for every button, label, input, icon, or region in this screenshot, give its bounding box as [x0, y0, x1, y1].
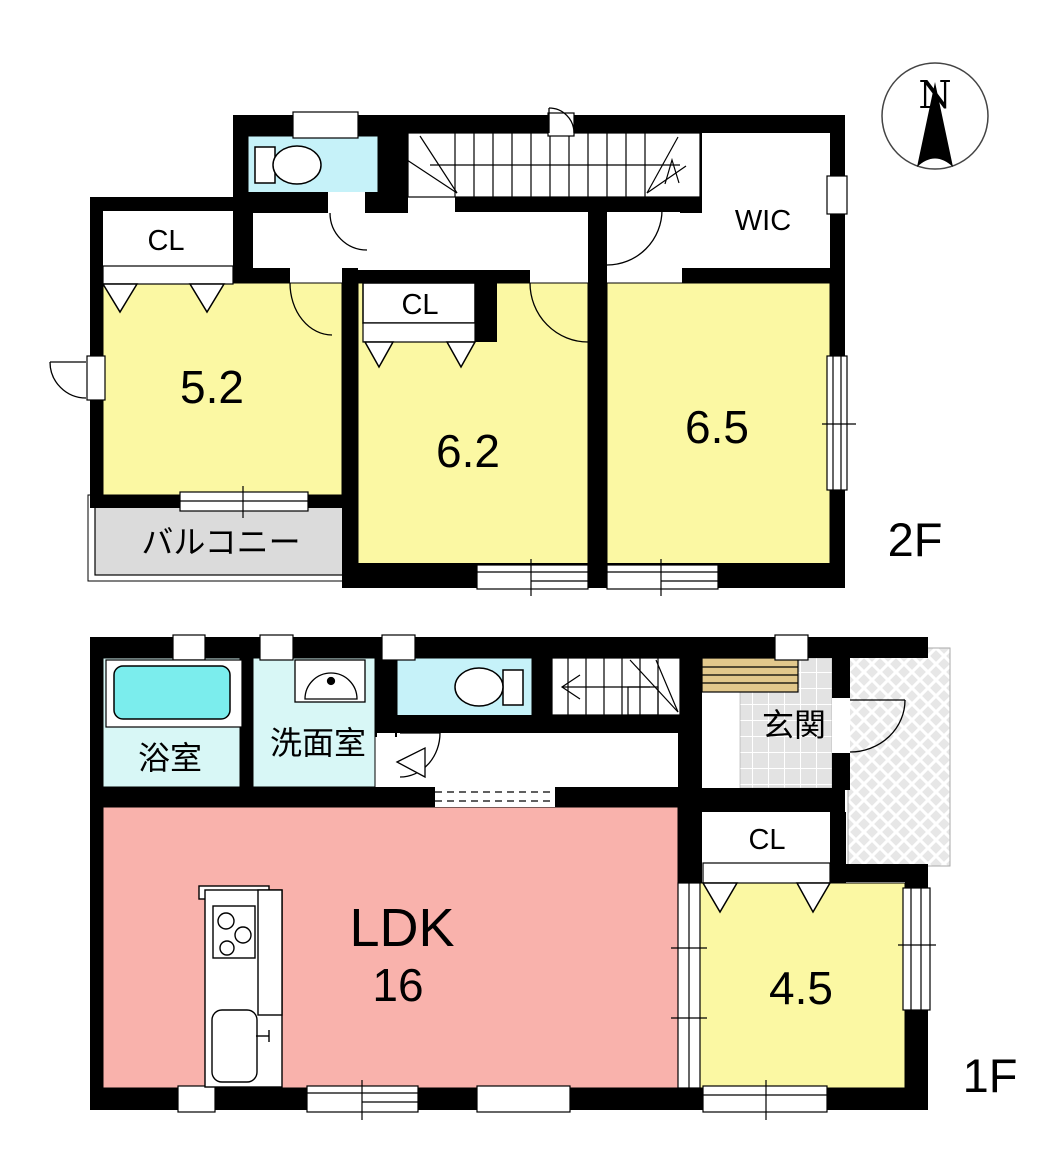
window [382, 635, 415, 660]
stove-icon [213, 906, 255, 958]
closet-1f-label: CL [748, 824, 785, 856]
bath-door-icon [397, 748, 425, 777]
floor-2f-label: 2F [888, 513, 943, 566]
sink-icon [295, 660, 365, 702]
floor-1f-plan: 浴室 洗面室 玄関 CL LDK 16 4.5 1F [90, 635, 1017, 1120]
room-52-label: 5.2 [180, 361, 244, 413]
toilet-icon-2f [255, 146, 321, 184]
door-arc-room-65 [607, 210, 662, 265]
ldk-label: LDK [349, 898, 454, 958]
hall-ldk-opening [435, 787, 555, 807]
window [173, 635, 205, 660]
window-45-bottom [703, 1080, 827, 1120]
bathtub-icon [106, 660, 242, 727]
room-45-label: 4.5 [769, 962, 833, 1014]
toilet-icon-1f [455, 668, 523, 706]
closet-62-label: CL [401, 289, 438, 321]
closet-front-left [103, 266, 233, 284]
window [87, 356, 105, 400]
window-62-bottom [477, 559, 588, 596]
stairs-2f [404, 133, 700, 197]
window-65-right [822, 356, 856, 490]
door-exterior-52 [50, 362, 86, 398]
washroom-label: 洗面室 [270, 725, 366, 761]
window [548, 113, 574, 136]
bath-label: 浴室 [138, 740, 202, 776]
floor-1f-label: 1F [963, 1049, 1018, 1102]
window [293, 112, 358, 138]
ldk-sliding-door [307, 1080, 418, 1120]
room-65-label: 6.5 [685, 401, 749, 453]
wic-label: WIC [735, 205, 791, 237]
floorplan-svg: N [0, 0, 1061, 1164]
kitchen-unit [199, 886, 282, 1087]
door-arc-toilet-2f [330, 213, 367, 250]
window [775, 635, 808, 660]
closet-front-62 [363, 323, 475, 342]
ldk-size-label: 16 [372, 959, 423, 1011]
window-45-right [898, 888, 936, 1010]
window [260, 635, 293, 660]
room-62-label: 6.2 [436, 425, 500, 477]
floor-2f-plan: CL CL WIC 5.2 6.2 6.5 バルコニー 2F [50, 108, 942, 596]
floorplan-canvas: N [0, 0, 1061, 1164]
window [178, 1086, 215, 1112]
stairs-1f [552, 658, 680, 715]
closet-left-label: CL [147, 225, 184, 257]
window [827, 176, 847, 214]
window-65-bottom [607, 559, 718, 596]
compass: N [882, 63, 988, 169]
porch [848, 648, 950, 866]
balcony-label: バルコニー [141, 524, 300, 560]
entrance-steps [702, 658, 798, 692]
window [477, 1086, 570, 1112]
entrance-label: 玄関 [762, 707, 826, 743]
